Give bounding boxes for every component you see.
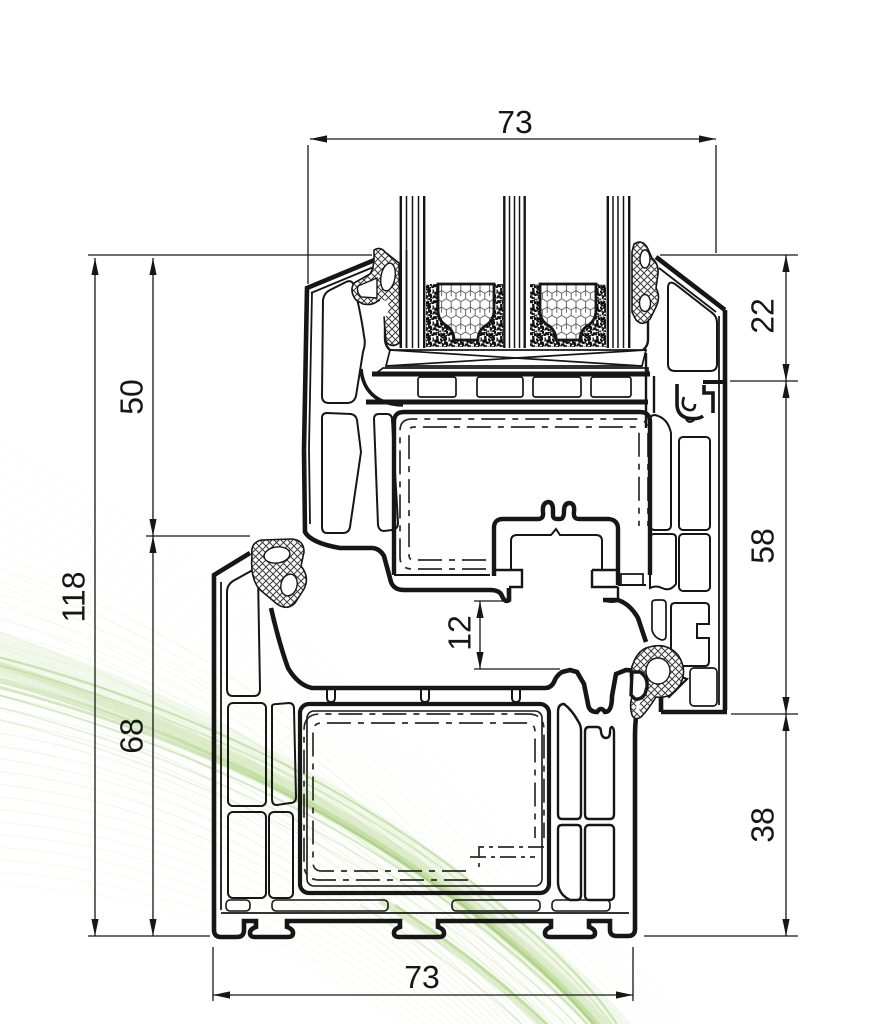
svg-text:12: 12: [441, 615, 477, 651]
svg-text:50: 50: [113, 379, 149, 415]
svg-text:58: 58: [744, 528, 780, 564]
svg-text:38: 38: [744, 807, 780, 843]
svg-text:73: 73: [497, 104, 533, 140]
svg-text:68: 68: [113, 718, 149, 754]
svg-text:22: 22: [744, 298, 780, 334]
svg-text:73: 73: [404, 959, 440, 995]
svg-text:118: 118: [55, 571, 91, 622]
